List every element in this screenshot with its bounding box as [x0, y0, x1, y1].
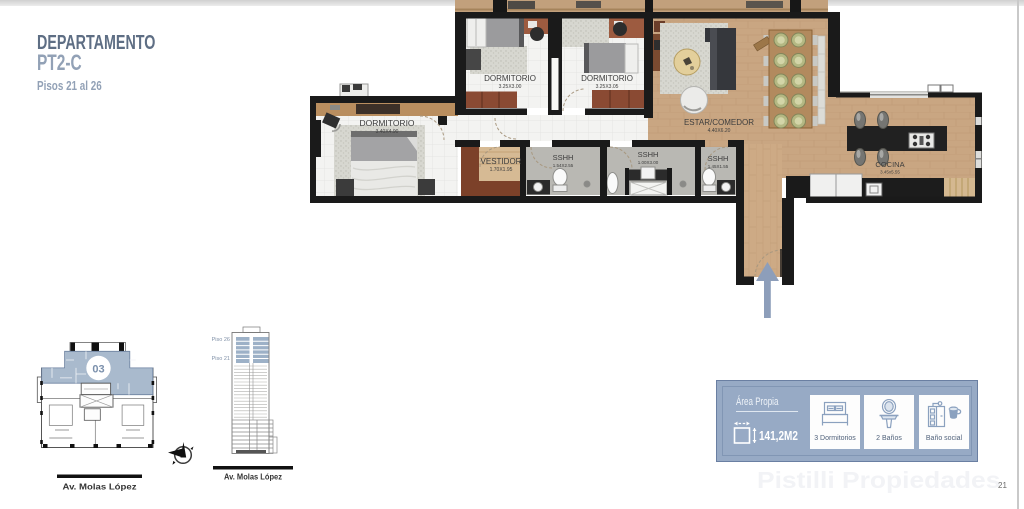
- svg-text:ESTAR/COMEDOR: ESTAR/COMEDOR: [684, 118, 754, 127]
- svg-text:1.45X1.55: 1.45X1.55: [708, 164, 729, 169]
- svg-text:SSHH: SSHH: [708, 154, 729, 163]
- svg-text:VESTIDOR: VESTIDOR: [481, 157, 522, 166]
- svg-text:Piso 21: Piso 21: [212, 356, 230, 362]
- svg-text:COCINA: COCINA: [875, 160, 904, 169]
- svg-text:1.00X3.00: 1.00X3.00: [638, 160, 659, 165]
- svg-text:DORMITORIO: DORMITORIO: [581, 74, 633, 83]
- svg-text:DORMITORIO: DORMITORIO: [484, 74, 536, 83]
- svg-text:3.45x5.55: 3.45x5.55: [880, 170, 900, 175]
- svg-text:03: 03: [92, 364, 104, 376]
- svg-text:Av. Molas López: Av. Molas López: [224, 473, 282, 482]
- svg-text:3.25X3.05: 3.25X3.05: [596, 84, 619, 90]
- svg-text:DORMITORIO: DORMITORIO: [359, 118, 414, 128]
- svg-text:3.40X4.90: 3.40X4.90: [376, 129, 399, 135]
- svg-text:4.40X6.20: 4.40X6.20: [708, 128, 731, 134]
- svg-text:SSHH: SSHH: [553, 153, 574, 162]
- svg-text:1.54X2.55: 1.54X2.55: [553, 163, 574, 168]
- svg-text:1.70X1.95: 1.70X1.95: [490, 167, 513, 173]
- svg-text:3.25X3.00: 3.25X3.00: [499, 84, 522, 90]
- svg-text:Av. Molas López: Av. Molas López: [63, 482, 137, 492]
- svg-text:Piso 26: Piso 26: [212, 337, 230, 343]
- svg-text:SSHH: SSHH: [638, 150, 659, 159]
